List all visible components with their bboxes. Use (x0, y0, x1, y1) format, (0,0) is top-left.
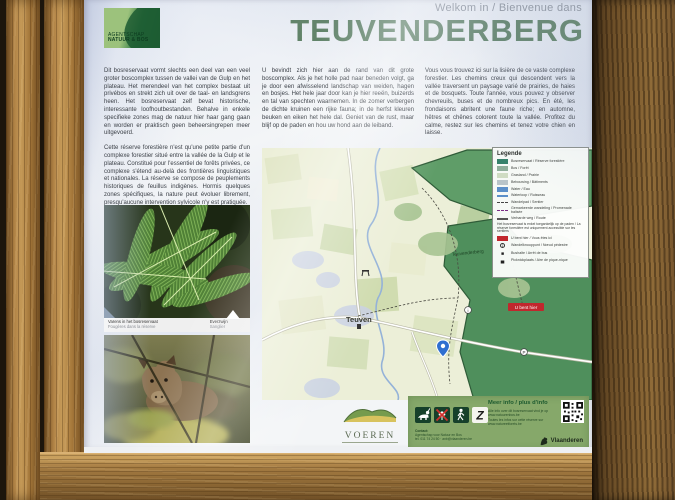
legend-row: U bent hier / Vous êtes ici (497, 236, 584, 241)
legend-title: Legende (497, 151, 584, 157)
legend-row: ▄Picknickplaats / Aire de pique-nique (497, 259, 584, 264)
photo-of-information-board: AGENTSCHAP NATUUR & BOS Welkom in / Bien… (0, 0, 675, 500)
flemish-lion-icon (539, 436, 549, 446)
map-legend: Legende Bosreservaat / Réserve forestièr… (492, 147, 589, 278)
svg-text:Z: Z (475, 409, 484, 423)
dog-on-leash-icon (415, 407, 431, 423)
voeren-rule (342, 442, 398, 443)
node-icon: 1 (497, 243, 508, 249)
intro-paragraph-fr: Cette réserve forestière n'est qu'une pe… (104, 145, 250, 207)
line-marked-walk (497, 210, 508, 211)
svg-text:U bent hier: U bent hier (515, 305, 538, 310)
intro-paragraph-nl: Dit bosreservaat vormt slechts een deel … (104, 68, 250, 138)
pictogram-row: Z (415, 407, 488, 423)
contact-line2: tel. 011 74 24 50 · anb@vlaanderen.be (415, 437, 505, 441)
info-contact: Contact: Agentschap voor Natuur en Bos t… (415, 429, 505, 441)
fern-illustration (104, 205, 250, 318)
bus-stop-icon: ■ (497, 252, 508, 257)
panel-title: TEUVENDERBERG (290, 13, 584, 49)
info-heading: Meer info / plus d'info (488, 400, 548, 406)
legend-row: Water / Eau (497, 187, 584, 192)
line-footpath (497, 202, 508, 203)
agentschap-natuur-en-bos-logo: AGENTSCHAP NATUUR & BOS (104, 8, 160, 48)
swatch-grassland (497, 173, 508, 178)
route-marker-z-icon: Z (472, 407, 488, 423)
legend-row: Bos / Forêt (497, 166, 584, 171)
wood-beam-bottom (40, 452, 600, 500)
you-are-here-badge: U bent hier (508, 303, 544, 311)
fern-caption: Varens in het bosreservaat Fougères dans… (108, 320, 158, 330)
voeren-landscape-icon (340, 398, 400, 426)
voeren-wordmark: VOEREN (332, 431, 408, 441)
info-lines: Alle info over dit bosreservaat vind je … (488, 409, 558, 426)
panel-bottom-edge (84, 447, 592, 453)
info-panel: AGENTSCHAP NATUUR & BOS Welkom in / Bien… (84, 0, 592, 453)
boar-caption-fr: Sanglier (210, 325, 228, 330)
legend-row: ■Bushalte / Arrêt de bus (497, 252, 584, 257)
intro-column-2: U bevindt zich hier aan de rand van dit … (262, 68, 414, 137)
picnic-icon: ▄ (497, 259, 508, 264)
fern-photo: Varens in het bosreservaat Fougères dans… (104, 205, 250, 332)
boar-caption: Everzwijn Sanglier (210, 320, 228, 330)
swatch-water (497, 187, 508, 192)
legend-row: Wandelpad / Sentier (497, 201, 584, 205)
logo-text: AGENTSCHAP NATUUR & BOS (108, 33, 148, 45)
qr-code (561, 400, 584, 423)
intro-column-3: Vous vous trouvez ici sur la lisière de … (425, 68, 575, 145)
vlaanderen-logo: Vlaanderen (539, 436, 583, 446)
intro-paragraph-nl-2: U bevindt zich hier aan de rand van dit … (262, 68, 414, 130)
intro-paragraph-fr-2: Vous vous trouvez ici sur la lisière de … (425, 68, 575, 138)
pedestrians-only-icon (453, 407, 469, 423)
info-strip: Z Meer info / plus d'info Alle info over… (408, 396, 589, 450)
boar-photo (104, 335, 250, 443)
legend-row: Gemarkeerde wandeling / Promenade balisé… (497, 207, 584, 215)
boar-illustration (104, 335, 250, 443)
no-picking-icon (434, 407, 450, 423)
swatch-forest-reserve (497, 159, 508, 164)
legend-row: Verharde weg / Route (497, 217, 584, 221)
info-line2: Toutes les infos sur cette réserve sur w… (488, 418, 558, 427)
legend-row: Grasland / Prairie (497, 173, 584, 178)
info-line1: Alle info over dit bosreservaat vind je … (488, 409, 558, 418)
voeren-logo: VOEREN (332, 398, 408, 448)
svg-text:i: i (468, 308, 469, 313)
fern-caption-fr: Fougères dans la réserve (108, 325, 158, 330)
legend-note: Het bosreservaat is enkel toegankelijk o… (497, 223, 584, 235)
legend-row: 1Wandelknooppunt / Nœud pédestre (497, 243, 584, 249)
line-stream (497, 195, 508, 197)
wood-post-right (592, 0, 675, 500)
swatch-buildings (497, 180, 508, 185)
legend-row: Bosreservaat / Réserve forestière (497, 159, 584, 164)
wood-post-left-inner (44, 0, 84, 500)
wood-post-left-outer (6, 0, 40, 500)
map-label-village: Teuven (346, 315, 372, 324)
legend-row: Bebouwing / Bâtiments (497, 180, 584, 185)
vlaanderen-wordmark: Vlaanderen (551, 438, 583, 444)
legend-row: Waterloop / Ruisseau (497, 194, 584, 198)
swatch-forest (497, 166, 508, 171)
photo-caption-bar: Varens in het bosreservaat Fougères dans… (104, 318, 250, 332)
intro-column-nl-fr: Dit bosreservaat vormt slechts een deel … (104, 68, 250, 215)
line-road (497, 218, 508, 220)
logo-line2: NATUUR & BOS (108, 37, 148, 43)
swatch-you-are-here (497, 236, 508, 241)
svg-text:P: P (522, 350, 525, 355)
